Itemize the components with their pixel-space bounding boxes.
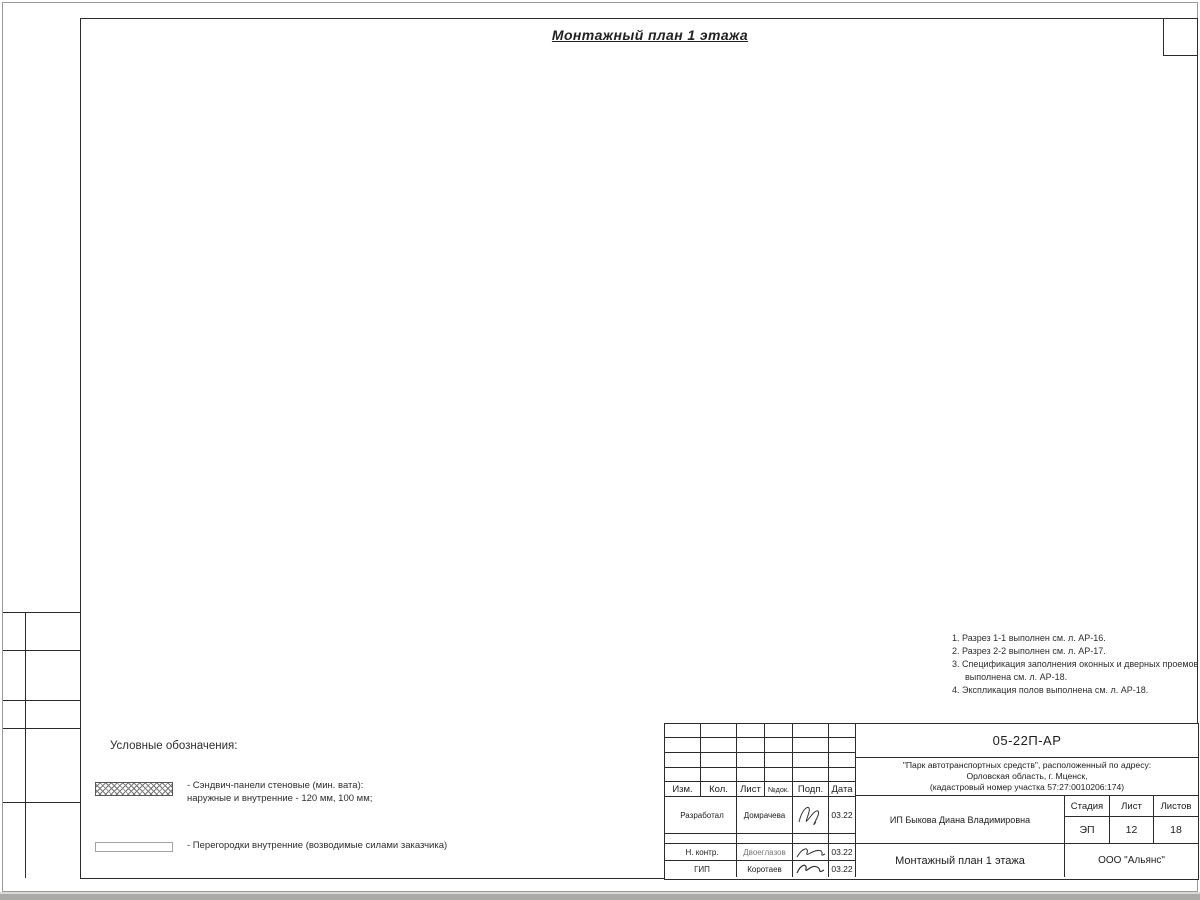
drawing-sheet: Монтажный план 1 этажа 1. Разрез 1-1 вып… (0, 0, 1200, 900)
tb-empty-cell (765, 768, 793, 782)
tb-empty-cell (665, 768, 701, 782)
tb-empty-cell (793, 738, 829, 753)
title-block: Изм. Кол. Лист №док. Подп. Дата Разработ… (664, 723, 1199, 880)
legend-item-text: - Перегородки внутренние (возводимые сил… (187, 840, 447, 853)
tb-date-developer: 03.22 (829, 797, 856, 834)
tb-empty-cell (737, 768, 765, 782)
tb-sheet-no: 12 (1110, 817, 1154, 844)
signature (795, 800, 827, 830)
legend-item-sandwich: - Сэндвич-панели стеновые (мин. вата): н… (95, 780, 525, 806)
tb-date-gip: 03.22 (829, 861, 856, 877)
tb-empty-cell (793, 834, 829, 844)
tb-signature-gip (793, 861, 829, 877)
tb-col-izm: Изм. (665, 782, 701, 797)
tb-empty-cell (701, 738, 737, 753)
tb-empty-cell (737, 724, 765, 738)
tb-empty-cell (829, 834, 856, 844)
tb-empty-cell (701, 724, 737, 738)
tb-empty-cell (737, 834, 793, 844)
legend-text-line: - Перегородки внутренние (возводимые сил… (187, 840, 447, 853)
signature (795, 845, 827, 860)
tb-empty-cell (737, 753, 765, 768)
sandwich-panel-symbol (95, 782, 173, 796)
tb-empty-cell (829, 738, 856, 753)
tb-doc-code: 05-22П-АР (856, 724, 1198, 758)
legend-item-text: - Сэндвич-панели стеновые (мин. вата): н… (187, 780, 372, 806)
partition-symbol (95, 842, 173, 852)
tb-name-ncontr: Двоеглазов (737, 844, 793, 861)
note-line: 2. Разрез 2-2 выполнен см. л. АР-17. (952, 645, 1200, 658)
tb-sheet-no-value: 12 (1126, 824, 1138, 836)
tb-empty-cell (793, 753, 829, 768)
legend-text-line: наружные и внутренние - 120 мм, 100 мм; (187, 793, 372, 806)
notes-block: 1. Разрез 1-1 выполнен см. л. АР-16. 2. … (952, 632, 1200, 697)
tb-empty-cell (665, 834, 737, 844)
tb-empty-cell (793, 768, 829, 782)
tb-col-podp: Подп. (793, 782, 829, 797)
legend-text-line: - Сэндвич-панели стеновые (мин. вата): (187, 780, 372, 793)
tb-name-developer: Домрачева (737, 797, 793, 834)
tb-project-line: (кадастровый номер участка 57:27:0010206… (930, 782, 1124, 793)
tb-col-data: Дата (829, 782, 856, 797)
tb-empty-cell (665, 724, 701, 738)
tb-empty-cell (701, 768, 737, 782)
tb-empty-cell (829, 753, 856, 768)
tb-role-ncontr: Н. контр. (665, 844, 737, 861)
tb-stage-value: ЭП (1065, 817, 1110, 844)
tb-empty-cell (829, 768, 856, 782)
tb-signature-developer (793, 797, 829, 834)
note-line: 3. Спецификация заполнения оконных и две… (952, 658, 1200, 684)
tb-empty-cell (701, 753, 737, 768)
note-line: 4. Экспликация полов выполнена см. л. АР… (952, 684, 1200, 697)
tb-sheets-total: 18 (1154, 817, 1198, 844)
legend-item-partition: - Перегородки внутренние (возводимые сил… (95, 840, 525, 853)
tb-role-developer: Разработал (665, 797, 737, 834)
legend: Условные обозначения: - Сэндвич-панели с… (95, 740, 525, 886)
tb-col-list: Лист (737, 782, 765, 797)
tb-empty-cell (665, 753, 701, 768)
signature (795, 862, 827, 876)
tb-col-ndok: №док. (765, 782, 793, 797)
tb-empty-cell (765, 738, 793, 753)
tb-empty-cell (765, 753, 793, 768)
scan-edge (0, 894, 1200, 900)
tb-project-line: Орловская область, г. Мценск, (966, 771, 1087, 782)
tb-name-gip: Коротаев (737, 861, 793, 877)
tb-empty-cell (765, 724, 793, 738)
tb-role-gip: ГИП (665, 861, 737, 877)
tb-stage-label: Стадия (1065, 796, 1110, 817)
tb-sheets-label: Листов (1154, 796, 1198, 817)
tb-sheet-title: Монтажный план 1 этажа (856, 844, 1065, 877)
tb-date-ncontr: 03.22 (829, 844, 856, 861)
note-line: 1. Разрез 1-1 выполнен см. л. АР-16. (952, 632, 1200, 645)
tb-empty-cell (829, 724, 856, 738)
tb-project-line: "Парк автотранспортных средств", располо… (903, 760, 1151, 771)
tb-sheet-label: Лист (1110, 796, 1154, 817)
legend-heading: Условные обозначения: (110, 740, 525, 752)
tb-col-kol: Кол. (701, 782, 737, 797)
tb-empty-cell (737, 738, 765, 753)
tb-empty-cell (793, 724, 829, 738)
tb-signature-ncontr (793, 844, 829, 861)
tb-empty-cell (665, 738, 701, 753)
tb-client: ИП Быкова Диана Владимировна (856, 796, 1065, 844)
tb-org: ООО "Альянс" (1065, 844, 1198, 877)
tb-project: "Парк автотранспортных средств", располо… (856, 758, 1198, 796)
